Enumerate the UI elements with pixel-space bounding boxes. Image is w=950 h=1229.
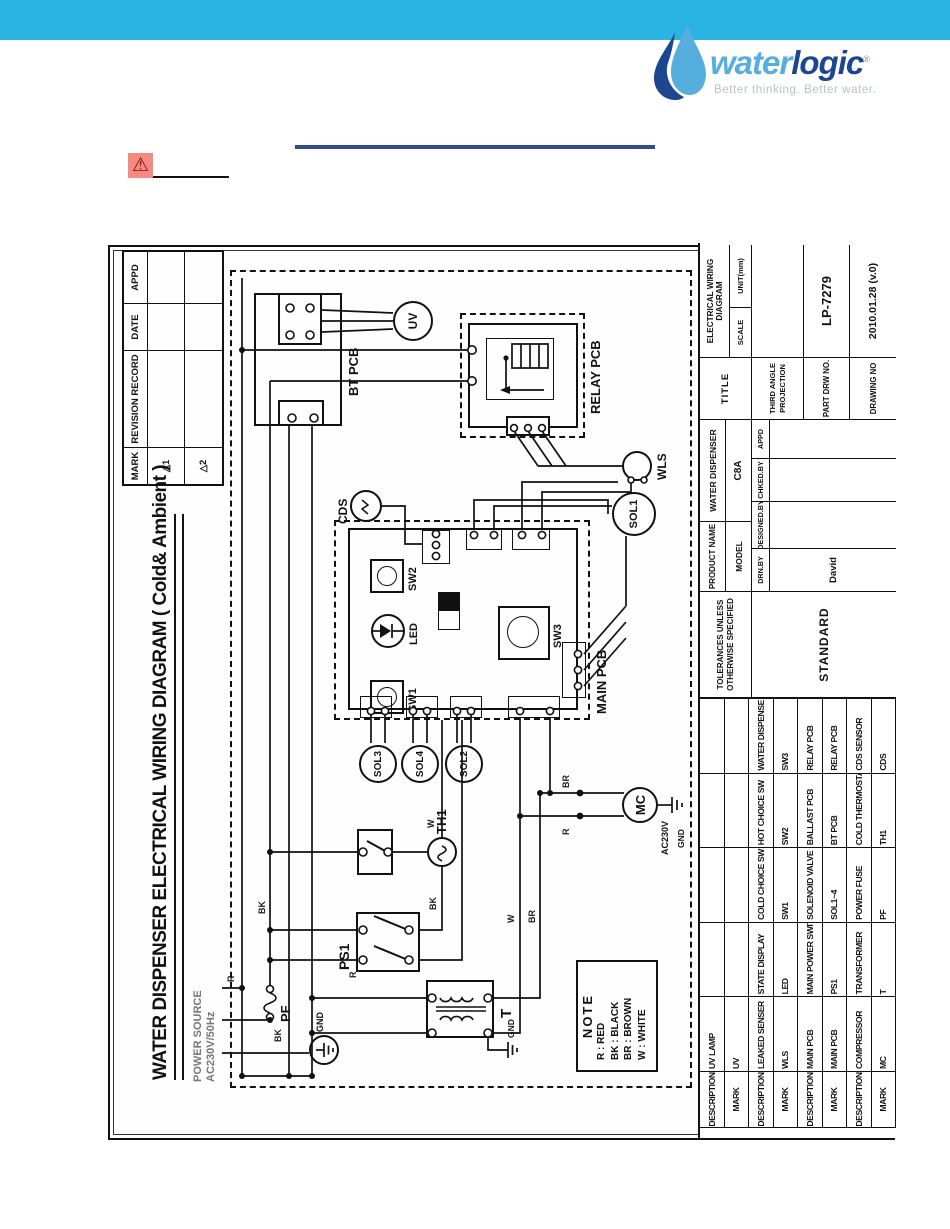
table-cell <box>725 773 750 848</box>
unit-label: UNIT(mm) <box>730 245 752 308</box>
table-row: MARKMAIN PCBPS1SOL1~4BT PCBRELAY PCB <box>823 698 848 1127</box>
redacted-blue-line <box>295 145 655 149</box>
table-cell: △1 <box>148 447 185 484</box>
table-row: MARKREVISION RECORDDATEAPPD <box>124 252 148 484</box>
waterlogic-logo: waterlogic® Better thinking. Better wate… <box>648 22 938 112</box>
table-row: DESCRIPTIONCOMPRESSORTRANSFORMERPOWER FU… <box>847 698 872 1127</box>
table-cell: UV <box>725 996 750 1071</box>
table-cell <box>700 847 725 922</box>
revision-table: MARKREVISION RECORDDATEAPPD△1△2 <box>122 250 224 486</box>
table-cell <box>148 252 185 303</box>
table-cell: CDS <box>872 698 897 773</box>
parts-list-table: DESCRIPTIONUV LAMPMARKUVDESCRIPTIONLEAKE… <box>700 698 896 1128</box>
table-row: △1 <box>148 252 185 484</box>
table-cell: WLS <box>774 996 799 1071</box>
scale-label: SCALE <box>730 308 752 358</box>
title-value: ELECTRICAL WIRING DIAGRAM <box>700 245 730 358</box>
table-cell: BT PCB <box>823 773 848 848</box>
table-cell: MARK <box>124 447 148 484</box>
chked-by-header: CHKED.BY <box>752 459 770 502</box>
table-cell: REVISION RECORD <box>124 350 148 447</box>
brand-water: water <box>710 44 791 81</box>
table-cell: POWER FUSE <box>847 847 872 922</box>
title-block-strip: DESCRIPTIONUV LAMPMARKUVDESCRIPTIONLEAKE… <box>698 243 897 1138</box>
table-cell <box>700 698 725 773</box>
table-cell: SOLENOID VALVE <box>798 847 823 922</box>
brand-name: waterlogic® <box>710 44 869 82</box>
table-row: MARKWLSLEDSW1SW2SW3 <box>774 698 799 1127</box>
table-row: MARKMCTPFTH1CDS <box>872 698 897 1127</box>
table-cell: TRANSFORMER <box>847 922 872 997</box>
table-cell: MARK <box>823 1071 848 1127</box>
designed-by-header: DESIGNED.BY <box>752 502 770 549</box>
warning-triangle-icon: ⚠ <box>128 153 153 178</box>
table-cell: MAIN PCB <box>798 996 823 1071</box>
designed-by-value <box>770 502 896 549</box>
tolerances-cell: TOLERANCES UNLESS OTHERWISE SPECIFIED <box>700 592 752 698</box>
table-row: △2 <box>185 252 222 484</box>
model-label: MODEL <box>726 522 752 592</box>
drawing-no-label: DRAWING NO <box>850 358 896 420</box>
table-cell: CDS SENSOR <box>847 698 872 773</box>
table-cell: MC <box>872 996 897 1071</box>
appd-header: APPD <box>752 420 770 459</box>
table-cell: MAIN PCB <box>823 996 848 1071</box>
drn-by-header: DRN.BY <box>752 549 770 592</box>
table-cell: SW1 <box>774 847 799 922</box>
table-cell: LEAKED SENSER <box>749 996 774 1071</box>
table-cell: UV LAMP <box>700 996 725 1071</box>
table-cell: △2 <box>185 447 222 484</box>
part-drw-no-label: PART DRW NO. <box>804 358 850 420</box>
table-cell <box>700 773 725 848</box>
product-name-label: PRODUCT NAME <box>700 522 726 592</box>
table-cell: COLD THERMOSTAT <box>847 773 872 848</box>
table-cell: DESCRIPTION <box>749 1071 774 1127</box>
water-drop-icon <box>648 22 706 104</box>
standard-cell: STANDARD <box>752 592 896 698</box>
product-name-value: WATER DISPENSER <box>700 420 726 522</box>
brand-logic: logic <box>791 44 863 81</box>
table-row: MARKUV <box>725 698 750 1127</box>
table-cell: BALLAST PCB <box>798 773 823 848</box>
title-label: TITLE <box>700 358 752 420</box>
table-row: DESCRIPTIONLEAKED SENSERSTATE DISPLAYCOL… <box>749 698 774 1127</box>
table-cell: HOT CHOICE SW <box>749 773 774 848</box>
table-cell <box>725 698 750 773</box>
registered-mark: ® <box>863 54 869 64</box>
table-cell: PF <box>872 847 897 922</box>
table-cell <box>148 350 185 447</box>
table-cell: DESCRIPTION <box>700 1071 725 1127</box>
table-cell: RELAY PCB <box>823 698 848 773</box>
table-cell: DESCRIPTION <box>798 1071 823 1127</box>
table-cell: MARK <box>872 1071 897 1127</box>
table-row: DESCRIPTIONUV LAMP <box>700 698 725 1127</box>
table-cell <box>700 922 725 997</box>
table-cell <box>725 922 750 997</box>
table-cell: T <box>872 922 897 997</box>
table-cell: DESCRIPTION <box>847 1071 872 1127</box>
table-cell: MARK <box>774 1071 799 1127</box>
appd-value <box>770 420 896 459</box>
table-cell: SW3 <box>774 698 799 773</box>
table-cell: SOL1~4 <box>823 847 848 922</box>
drawing-no-value: 2010.01.28 (v.0) <box>850 245 896 358</box>
chked-by-value <box>770 459 896 502</box>
table-cell: MARK <box>725 1071 750 1127</box>
table-cell <box>185 350 222 447</box>
wiring-diagram-sheet: WATER DISPENSER ELECTRICAL WIRING DIAGRA… <box>108 245 895 1140</box>
table-cell <box>185 252 222 303</box>
table-cell: LED <box>774 922 799 997</box>
table-cell: WATER DISPENSE <box>749 698 774 773</box>
projection-cell: THIRD ANGLE PROJECTION <box>752 358 804 420</box>
table-cell: TH1 <box>872 773 897 848</box>
table-cell: COLD CHOICE SW <box>749 847 774 922</box>
table-cell <box>148 303 185 350</box>
table-cell: STATE DISPLAY <box>749 922 774 997</box>
table-cell: PS1 <box>823 922 848 997</box>
table-cell: SW2 <box>774 773 799 848</box>
brand-tagline: Better thinking. Better water. <box>714 84 876 96</box>
document-page: waterlogic® Better thinking. Better wate… <box>0 0 950 1229</box>
table-cell: DATE <box>124 303 148 350</box>
drawn-by-value: David <box>770 549 896 592</box>
table-cell <box>185 303 222 350</box>
part-drw-no-value: LP-7279 <box>804 245 850 358</box>
table-cell: RELAY PCB <box>798 698 823 773</box>
projection-value <box>752 245 804 358</box>
table-cell: COMPRESSOR <box>847 996 872 1071</box>
table-row: DESCRIPTIONMAIN PCBMAIN POWER SWITCHSOLE… <box>798 698 823 1127</box>
model-value: C8A <box>726 420 752 522</box>
warning-underline <box>153 176 229 178</box>
table-cell <box>725 847 750 922</box>
table-cell: APPD <box>124 252 148 303</box>
table-cell: MAIN POWER SWITCH <box>798 922 823 997</box>
